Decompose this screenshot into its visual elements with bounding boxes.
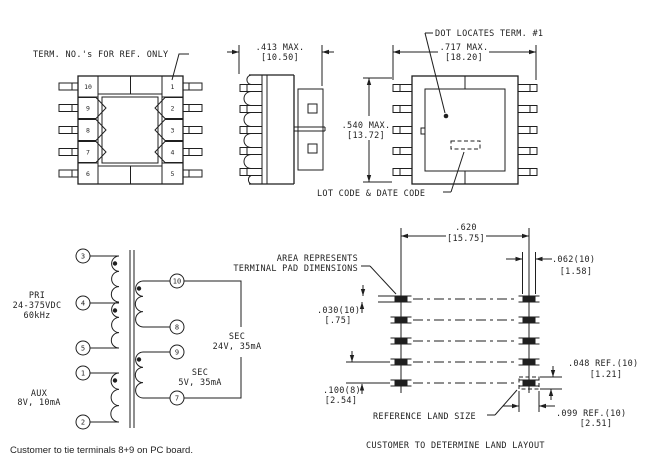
dim-land-width: .099 REF.(10) [2.51] xyxy=(503,391,626,429)
dim-540-inches: .540 MAX. xyxy=(342,121,391,131)
sec1-label: SEC xyxy=(229,332,245,342)
side-view-leads xyxy=(240,85,262,176)
dim-620-inches: .620 xyxy=(455,223,477,233)
dim-099-inches: .099 REF.(10) xyxy=(556,409,626,419)
dim-100-mm: [2.54] xyxy=(325,396,358,406)
pri-voltage: 24-375VDC xyxy=(13,301,62,311)
dim-height-bottom: .540 MAX. [13.72] xyxy=(342,78,392,182)
lot-code-area xyxy=(451,141,480,149)
dim-land-height: .048 REF.(10) [1.21] xyxy=(540,359,638,400)
sch-term-8: 8 xyxy=(175,324,179,332)
bottom-view-body xyxy=(412,76,518,184)
term-label-3: 3 xyxy=(171,126,175,134)
terminal-1-dot xyxy=(444,114,449,119)
winding-coils xyxy=(111,256,143,422)
drawing-canvas: 10 9 8 7 6 1 2 3 4 5 TERM. NO.'s FOR REF… xyxy=(0,0,650,473)
term-label-4: 4 xyxy=(171,148,175,156)
dim-030-inches: .030(10) xyxy=(317,306,360,316)
sch-term-5: 5 xyxy=(81,345,85,353)
term-label-5: 5 xyxy=(171,170,175,178)
land-pattern: .620 [15.75] .062(10) [1.58] .030(10) [.… xyxy=(233,223,638,451)
dim-717-inches: .717 MAX. xyxy=(440,43,489,53)
sch-term-4: 4 xyxy=(81,300,85,308)
term-label-2: 2 xyxy=(171,104,175,112)
dim-030-mm: [.75] xyxy=(324,316,351,326)
dim-413-mm: [10.50] xyxy=(261,53,299,63)
area-represents-label-2: TERMINAL PAD DIMENSIONS xyxy=(233,264,358,274)
dim-048-inches: .048 REF.(10) xyxy=(568,359,638,369)
term-label-1: 1 xyxy=(171,83,175,91)
reference-leader xyxy=(487,390,517,415)
pri-frequency: 60kHz xyxy=(23,311,50,321)
dim-620-mm: [15.75] xyxy=(447,234,485,244)
sch-term-7: 7 xyxy=(175,395,179,403)
lot-code-label: LOT CODE & DATE CODE xyxy=(317,189,425,199)
side-clip-block xyxy=(298,89,323,170)
sch-term-3: 3 xyxy=(81,253,85,261)
dim-717-mm: [18.20] xyxy=(445,53,483,63)
term-label-10: 10 xyxy=(84,83,92,91)
bottom-view-inner xyxy=(425,89,505,171)
dim-099-mm: [2.51] xyxy=(580,419,613,429)
dim-pitch-x: .620 [15.75] xyxy=(401,223,529,244)
sch-term-10: 10 xyxy=(173,278,181,286)
core-window-outer xyxy=(98,94,162,166)
land-layout-note: CUSTOMER TO DETERMINE LAND LAYOUT xyxy=(366,441,545,451)
package-bottom-view: DOT LOCATES TERM. #1 .717 MAX. [18.20] .… xyxy=(317,29,543,199)
term-ref-note: TERM. NO.'s FOR REF. ONLY xyxy=(33,50,168,60)
sch-term-9: 9 xyxy=(175,349,179,357)
sec2-label: SEC xyxy=(192,368,208,378)
core-window-inner xyxy=(102,97,158,163)
term-label-7: 7 xyxy=(86,148,90,156)
dim-width-side: .413 MAX. [10.50] xyxy=(227,43,334,86)
transformer-datasheet-drawing: 10 9 8 7 6 1 2 3 4 5 TERM. NO.'s FOR REF… xyxy=(0,0,650,473)
dot-locates-label: DOT LOCATES TERM. #1 xyxy=(435,29,543,39)
reference-land-label: REFERENCE LAND SIZE xyxy=(373,412,476,422)
sch-term-1: 1 xyxy=(81,370,85,378)
tie-terminals-note: Customer to tie terminals 8+9 on PC boar… xyxy=(10,445,193,456)
bottom-view-leads xyxy=(393,85,537,176)
dim-width-bottom: .717 MAX. [18.20] xyxy=(393,43,536,80)
area-leader xyxy=(361,266,396,294)
lot-code-leader xyxy=(443,152,464,192)
pri-label: PRI xyxy=(29,291,45,301)
dim-pad-width: .062(10) [1.58] xyxy=(506,252,595,294)
aux-rating: 8V, 10mA xyxy=(17,398,60,408)
sec1-rating: 24V, 35mA xyxy=(213,342,262,352)
package-top-view: 10 9 8 7 6 1 2 3 4 5 TERM. NO.'s FOR REF… xyxy=(33,50,202,184)
dim-pad-height: .030(10) [.75] xyxy=(317,285,391,326)
winding-schematic: 3 4 5 1 2 10 8 9 7 PRI 24-375VDC 60kHz A… xyxy=(10,249,261,456)
dim-413-inches: .413 MAX. xyxy=(256,43,305,53)
dim-048-mm: [1.21] xyxy=(590,370,623,380)
dim-062-mm: [1.58] xyxy=(560,267,593,277)
term-label-6: 6 xyxy=(86,170,90,178)
dim-062-inches: .062(10) xyxy=(552,255,595,265)
sch-term-2: 2 xyxy=(81,419,85,427)
dim-540-mm: [13.72] xyxy=(347,131,385,141)
term-label-9: 9 xyxy=(86,104,90,112)
dim-100-inches: .100(8) xyxy=(323,386,361,396)
primary-winding xyxy=(111,256,119,348)
package-side-view: .413 MAX. [10.50] xyxy=(227,43,334,184)
sec2-rating: 5V, 35mA xyxy=(178,378,221,388)
row-centerlines xyxy=(413,299,517,383)
area-represents-label-1: AREA REPRESENTS xyxy=(277,254,358,264)
term-label-8: 8 xyxy=(86,126,90,134)
dim-pitch-y: .100(8) [2.54] xyxy=(323,351,390,406)
